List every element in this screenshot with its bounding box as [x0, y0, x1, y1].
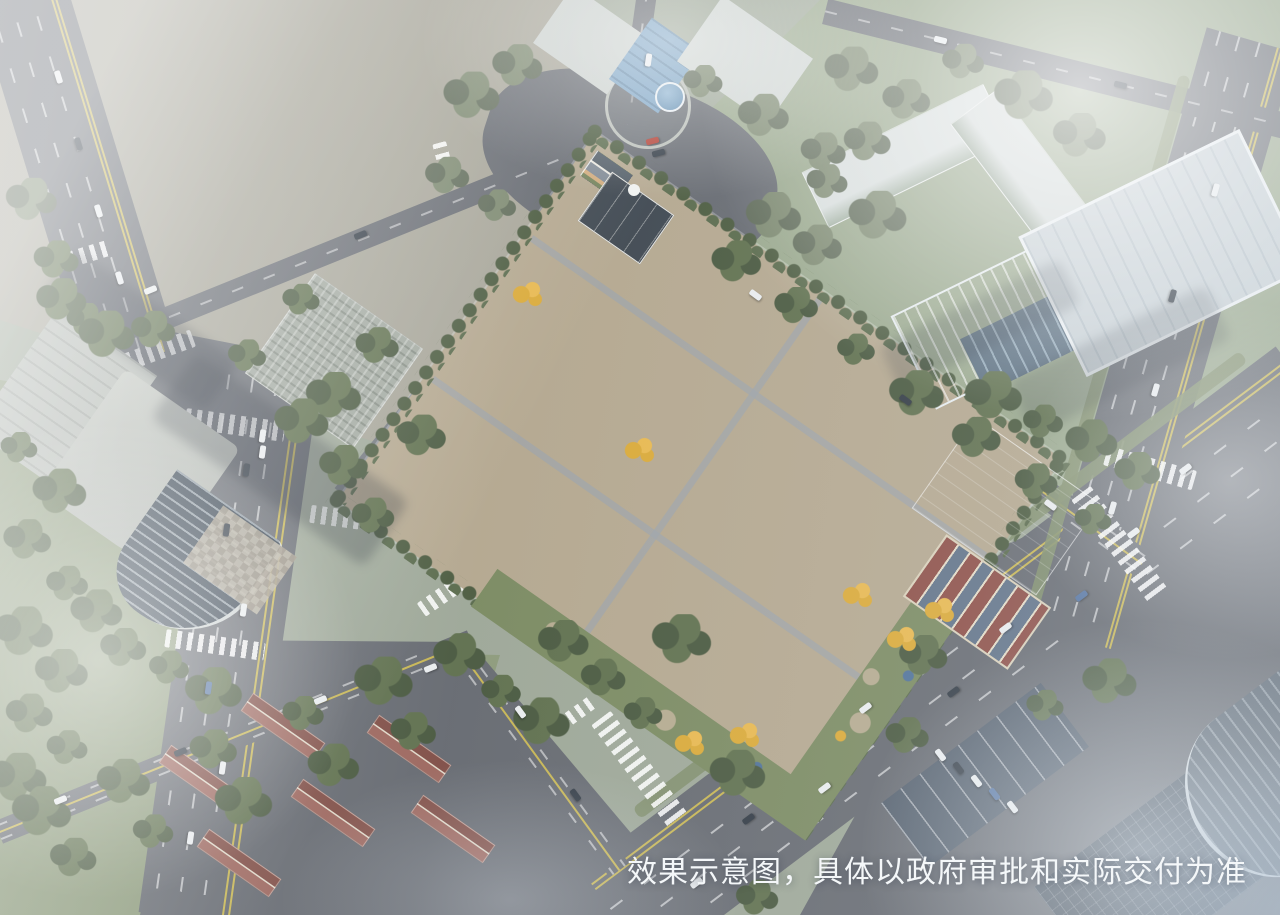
- aerial-render-scene: 效果示意图，具体以政府审批和实际交付为准: [0, 0, 1280, 915]
- clubhouse-dome: [628, 184, 640, 196]
- disclaimer-text: 效果示意图，具体以政府审批和实际交付为准: [627, 847, 1247, 891]
- blue-dome: [655, 82, 685, 112]
